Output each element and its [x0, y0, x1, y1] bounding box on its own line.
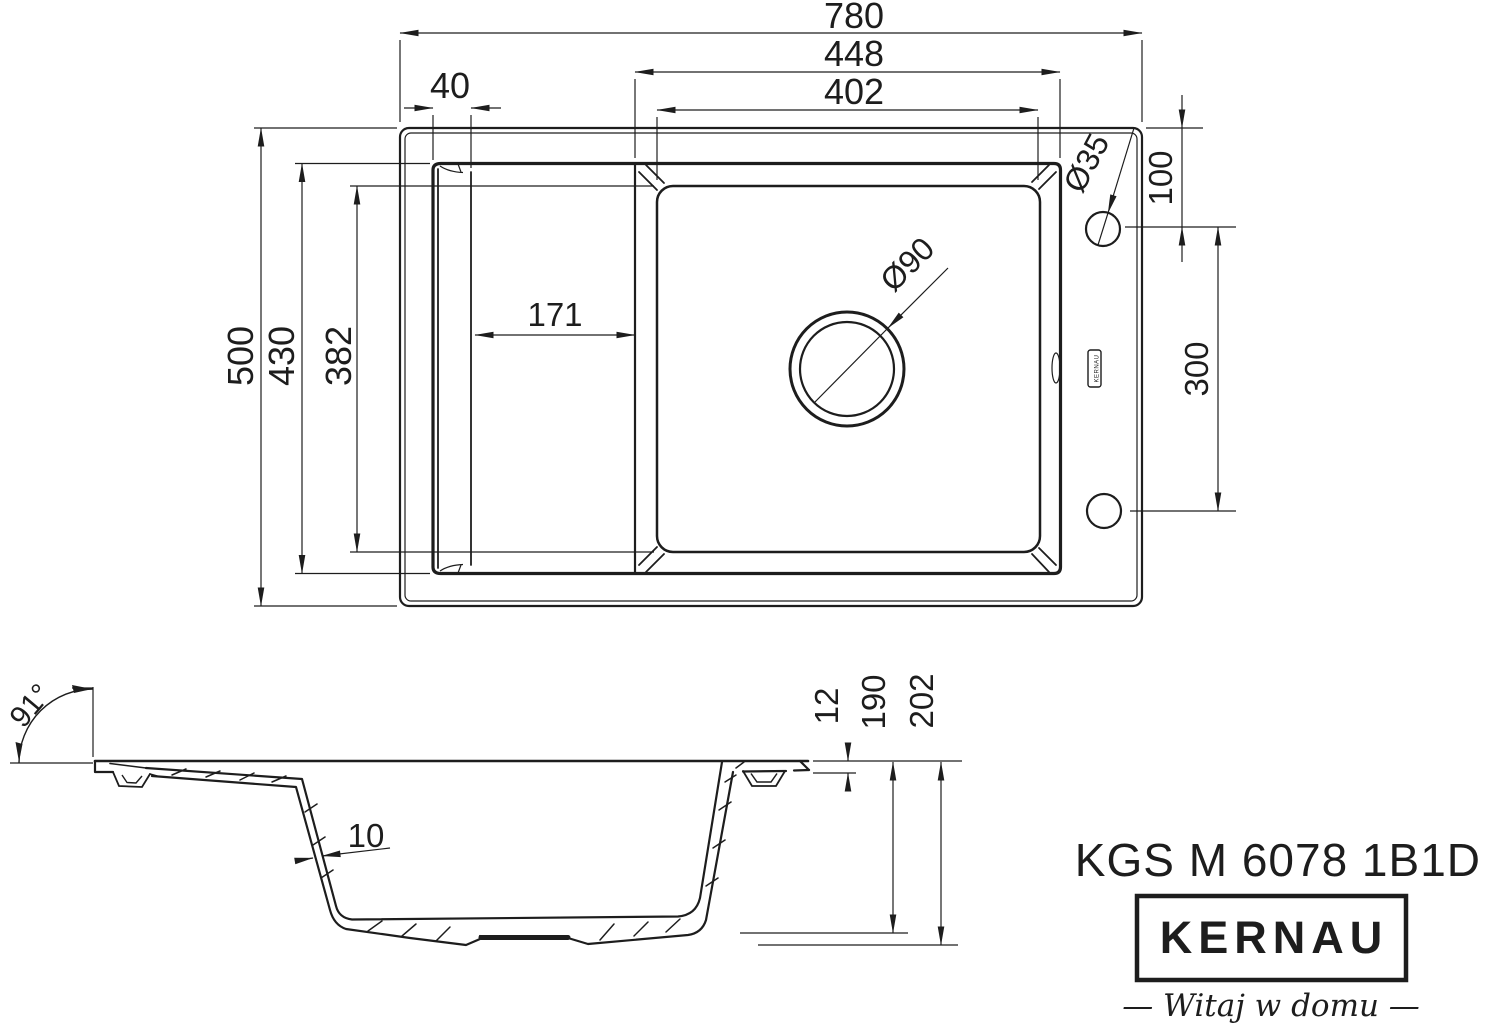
- side-view: 91° 12 190 202 10: [3, 673, 962, 945]
- brand-tagline: — Witaj w domu —: [1122, 988, 1420, 1024]
- dim-line-10-left: [295, 858, 313, 861]
- dim-40: 40: [430, 65, 470, 106]
- side-overflow-pocket-inner: [751, 774, 777, 783]
- sink-dimension-drawing: Ø90 Ø35 KERNAU 780 448 402: [0, 0, 1488, 1032]
- dim-300: 300: [1178, 341, 1215, 396]
- sink-rim-inner-edge: [405, 133, 1137, 601]
- dim-100: 100: [1142, 150, 1179, 205]
- bowl-inner-edge: [657, 186, 1040, 552]
- branding: KGS M 6078 1B1D KERNAU — Witaj w domu —: [1075, 834, 1481, 1024]
- side-deck-underside: [743, 770, 809, 772]
- tap-hole-diameter-label: Ø35: [1056, 128, 1116, 198]
- side-right-end-bevel: [800, 761, 809, 770]
- sink-outer-edge: [400, 128, 1142, 606]
- brand-badge-label: KERNAU: [1095, 354, 1101, 382]
- dim-382: 382: [318, 326, 359, 386]
- dim-430: 430: [261, 326, 302, 386]
- top-view: Ø90 Ø35 KERNAU 780 448 402: [220, 0, 1236, 606]
- section-hatching: [172, 762, 744, 941]
- dim-448: 448: [824, 33, 884, 74]
- dim-171: 171: [527, 296, 582, 333]
- angle-arrow-bottom: [16, 742, 23, 762]
- drain-diameter-label: Ø90: [873, 230, 941, 298]
- dim-angle: 91°: [3, 678, 57, 734]
- dim-780: 780: [824, 0, 884, 36]
- top-view-dimensions: 780 448 402 40 500 430: [220, 0, 1236, 606]
- side-view-dimensions: 12 190 202 10: [295, 673, 962, 945]
- dim-190: 190: [855, 674, 892, 729]
- side-left-lip: [95, 761, 113, 772]
- technical-drawing-page: Ø90 Ø35 KERNAU 780 448 402: [0, 0, 1488, 1032]
- tap-hole-dia-line: [1098, 213, 1108, 245]
- recess-outline: [433, 164, 1061, 574]
- drainer-corner-tick-top: [458, 164, 461, 172]
- side-left-clip-outer: [113, 772, 150, 787]
- side-left-clip-inner: [122, 775, 142, 783]
- angle-arrow-top: [72, 685, 92, 693]
- overflow-slot: [1052, 353, 1060, 383]
- dim-12: 12: [808, 688, 845, 725]
- tap-hole-leader: [1108, 128, 1134, 213]
- drain-dia-line: [814, 328, 888, 403]
- dim-500: 500: [220, 326, 261, 386]
- dim-10: 10: [348, 817, 385, 854]
- side-profile-inner: [146, 762, 722, 920]
- dim-402: 402: [824, 71, 884, 112]
- dim-202: 202: [903, 673, 940, 728]
- side-overflow-pocket-outer: [743, 771, 785, 786]
- model-number: KGS M 6078 1B1D: [1075, 834, 1481, 886]
- brand-logo-text: KERNAU: [1160, 912, 1389, 963]
- angle-annotation: 91°: [3, 678, 93, 763]
- side-left-lip-joins: [110, 764, 157, 777]
- drainer-corner-tick-bottom: [458, 565, 461, 573]
- accessory-hole: [1087, 494, 1121, 528]
